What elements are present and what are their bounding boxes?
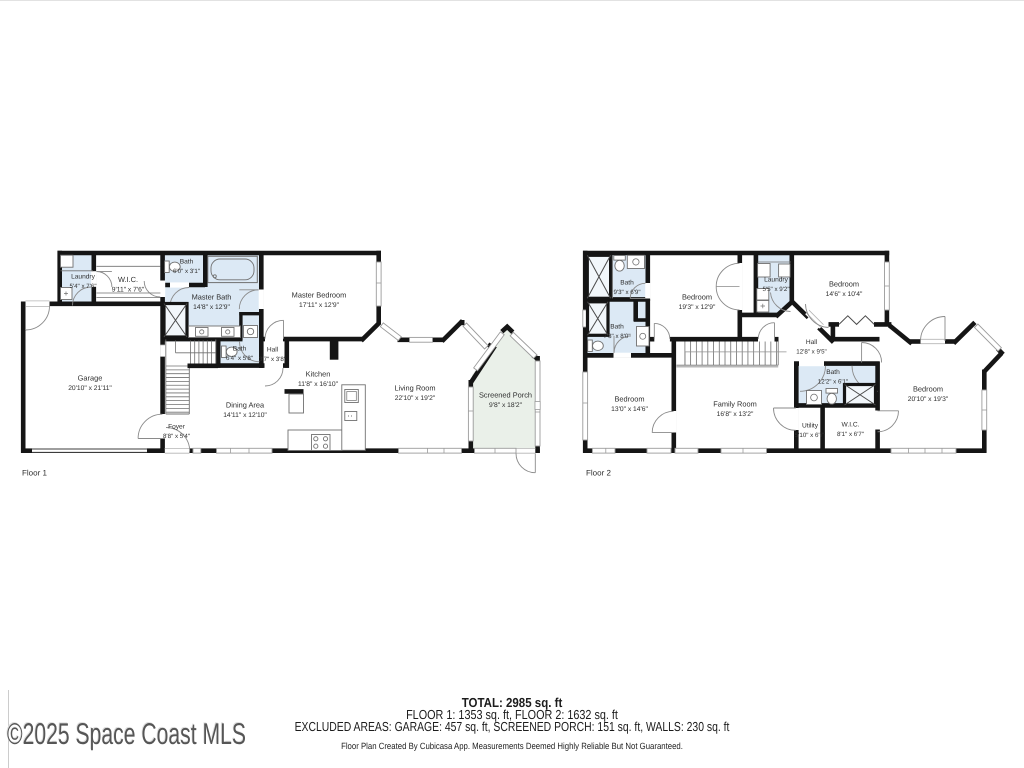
svg-text:W.I.C.: W.I.C. — [842, 422, 860, 429]
svg-text:Kitchen: Kitchen — [306, 370, 331, 379]
svg-text:Utility: Utility — [802, 423, 819, 430]
svg-text:Bath: Bath — [826, 369, 840, 376]
svg-text:7'3" x 8'0": 7'3" x 8'0" — [603, 333, 630, 340]
svg-text:5'10" x 6'7": 5'10" x 6'7" — [795, 432, 826, 439]
svg-text:Dining Area: Dining Area — [226, 401, 265, 410]
svg-text:Master Bath: Master Bath — [192, 293, 232, 302]
svg-text:Laundry: Laundry — [71, 274, 96, 281]
svg-text:Floor 2: Floor 2 — [586, 469, 611, 478]
svg-text:Laundry: Laundry — [764, 277, 789, 284]
svg-text:8'1" x 6'7": 8'1" x 6'7" — [837, 431, 864, 438]
svg-text:20'10" x 19'3": 20'10" x 19'3" — [908, 396, 949, 403]
svg-text:12'8" x 9'5": 12'8" x 9'5" — [796, 348, 827, 355]
svg-text:W.I.C.: W.I.C. — [118, 275, 138, 284]
svg-text:Hall: Hall — [806, 339, 818, 346]
svg-text:Garage: Garage — [78, 374, 103, 383]
svg-text:Bedroom: Bedroom — [913, 385, 943, 394]
svg-text:Bath: Bath — [620, 280, 634, 287]
svg-text:Family Room: Family Room — [713, 400, 757, 409]
svg-text:8'8" x 5'4": 8'8" x 5'4" — [163, 433, 190, 440]
svg-text:17'11" x 12'9": 17'11" x 12'9" — [299, 302, 340, 309]
svg-text:14'6" x 10'4": 14'6" x 10'4" — [826, 291, 863, 298]
svg-text:22'10" x 19'2": 22'10" x 19'2" — [395, 395, 436, 402]
svg-text:19'3" x 12'9": 19'3" x 12'9" — [679, 304, 716, 311]
svg-text:Bedroom: Bedroom — [682, 293, 712, 302]
svg-text:Foyer: Foyer — [168, 424, 186, 431]
svg-text:Hall: Hall — [267, 347, 279, 354]
svg-text:6'4" x 5'8": 6'4" x 5'8" — [226, 355, 253, 362]
svg-text:9'3" x 6'9": 9'3" x 6'9" — [613, 289, 640, 296]
svg-text:20'10" x 21'11": 20'10" x 21'11" — [68, 385, 112, 392]
svg-text:14'11" x 12'10": 14'11" x 12'10" — [223, 412, 267, 419]
svg-text:Bedroom: Bedroom — [829, 280, 859, 289]
svg-text:Bath: Bath — [180, 259, 194, 266]
svg-text:11'8" x 16'10": 11'8" x 16'10" — [298, 381, 339, 388]
svg-text:16'8" x 13'2": 16'8" x 13'2" — [717, 411, 754, 418]
svg-text:Screened Porch: Screened Porch — [479, 391, 532, 400]
svg-text:Floor 1: Floor 1 — [22, 469, 47, 478]
svg-text:Bath: Bath — [233, 346, 247, 353]
svg-text:9'8" x 18'2": 9'8" x 18'2" — [489, 402, 523, 409]
svg-text:Living Room: Living Room — [394, 384, 435, 393]
svg-text:Bath: Bath — [610, 324, 624, 331]
svg-text:3'7" x 3'8": 3'7" x 3'8" — [259, 356, 286, 363]
svg-text:5'5" x 9'2": 5'5" x 9'2" — [762, 286, 789, 293]
svg-text:12'2" x 6'1": 12'2" x 6'1" — [818, 378, 849, 385]
svg-text:13'0" x 14'6": 13'0" x 14'6" — [611, 406, 648, 413]
svg-text:Master Bedroom: Master Bedroom — [292, 291, 347, 300]
svg-text:5'4" x 7'6": 5'4" x 7'6" — [69, 283, 96, 290]
svg-text:6'0" x 3'1": 6'0" x 3'1" — [173, 268, 200, 275]
svg-text:9'11" x 7'6": 9'11" x 7'6" — [112, 286, 145, 293]
svg-text:Bedroom: Bedroom — [615, 395, 645, 404]
svg-text:14'8" x 12'9": 14'8" x 12'9" — [193, 304, 230, 311]
